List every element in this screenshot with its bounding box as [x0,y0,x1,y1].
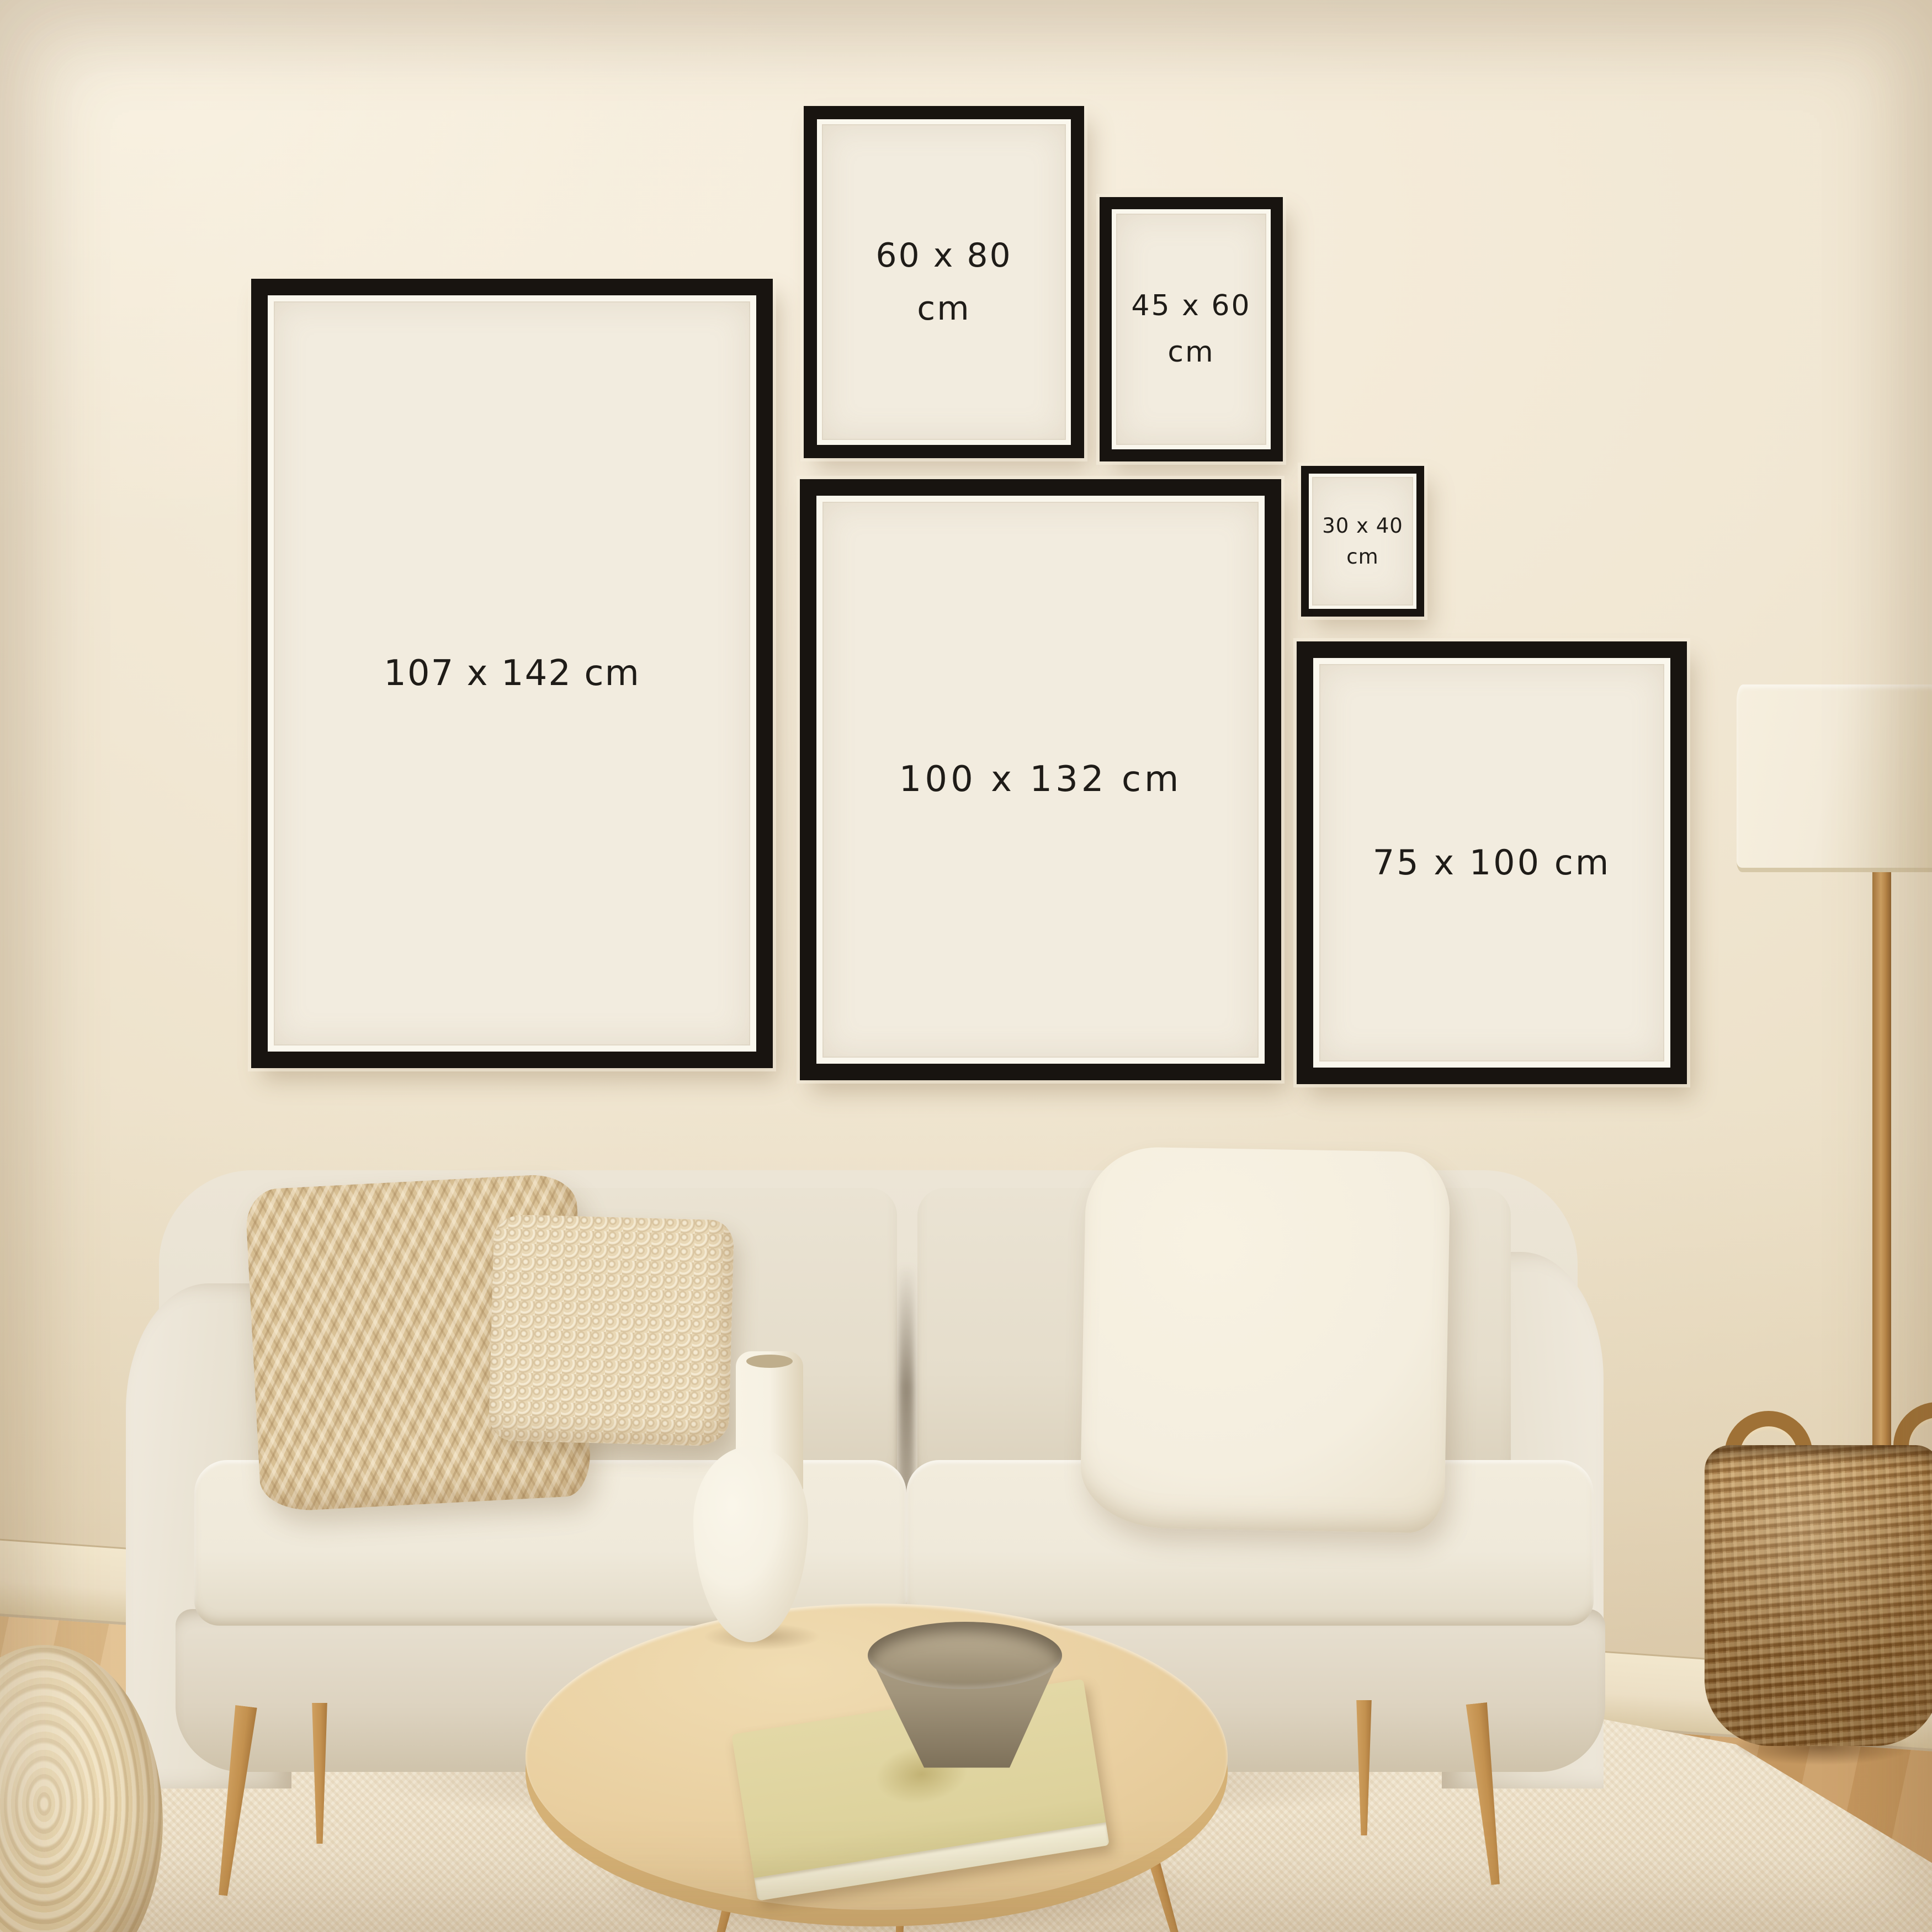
frame-mat: 75 x 100 cm [1313,658,1670,1068]
ceramic-bowl-rim [868,1622,1062,1689]
living-room-frame-size-mockup: 107 x 142 cm 60 x 80 cm 45 x 60 cm 30 x … [0,0,1932,1932]
woven-basket [1705,1445,1932,1746]
frame-canvas: 30 x 40 cm [1312,477,1413,606]
frame-canvas: 100 x 132 cm [822,502,1259,1058]
frame-mat: 100 x 132 cm [816,496,1265,1064]
size-label: 100 x 132 cm [899,751,1182,808]
frame-mat: 45 x 60 cm [1112,209,1271,449]
frame-mat: 30 x 40 cm [1309,474,1416,609]
cream-pillow [1080,1146,1451,1533]
frame-107x142: 107 x 142 cm [251,279,773,1068]
frame-canvas: 107 x 142 cm [274,301,750,1045]
frame-100x132: 100 x 132 cm [800,479,1281,1080]
frame-75x100: 75 x 100 cm [1297,641,1687,1084]
floor-lamp-shade [1737,684,1932,872]
frame-canvas: 45 x 60 cm [1116,214,1266,445]
frame-canvas: 75 x 100 cm [1319,664,1664,1061]
frame-canvas: 60 x 80 cm [822,124,1066,440]
vase-opening [746,1355,793,1368]
size-label: 30 x 40 cm [1322,511,1403,572]
size-label: 75 x 100 cm [1373,835,1611,890]
boucle-pillow [489,1214,735,1446]
frame-45x60: 45 x 60 cm [1100,197,1283,461]
frame-mat: 107 x 142 cm [268,295,756,1052]
size-label: 45 x 60 cm [1131,283,1251,375]
size-label: 107 x 142 cm [384,645,640,702]
frame-30x40: 30 x 40 cm [1301,466,1424,617]
frame-60x80: 60 x 80 cm [804,106,1084,458]
floor-lamp-pole [1872,861,1891,1479]
frame-mat: 60 x 80 cm [817,119,1071,445]
size-label: 60 x 80 cm [875,229,1012,335]
